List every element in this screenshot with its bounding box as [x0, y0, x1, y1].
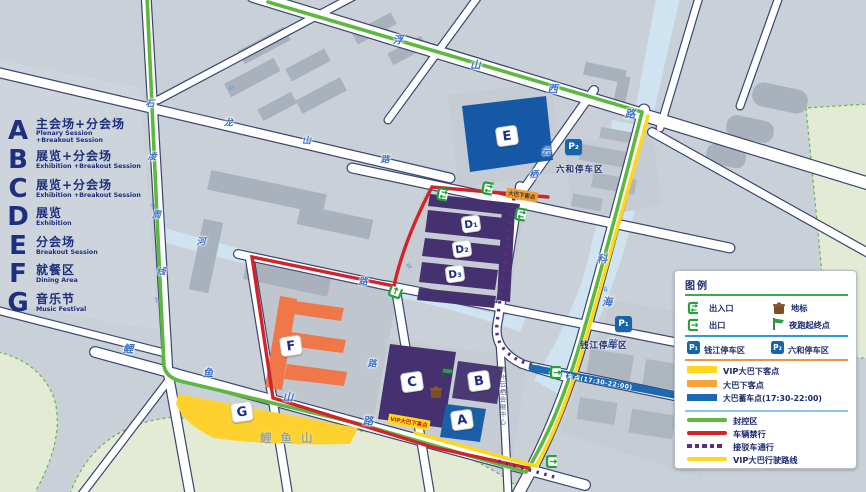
- venue-key-letter: D: [6, 204, 30, 230]
- hill-label: 鲤鱼山: [260, 430, 322, 446]
- parking-p1-icon: P₁: [687, 341, 700, 354]
- legend-bus-drop-label: 大巴下客点: [723, 379, 764, 391]
- venue-key-row-e: E 分会场 Breakout Session: [6, 231, 156, 261]
- no-vehicle-swatch: [687, 431, 727, 435]
- building-label-e: E: [495, 125, 520, 148]
- building-label-g: G: [230, 401, 255, 424]
- night-run-flag-icon: [441, 366, 456, 381]
- venue-key-row-a: A 主会场+分会场 Plenary Session +Breakout Sess…: [6, 116, 156, 146]
- legend-no-vehicle-label: 车辆禁行: [733, 428, 766, 440]
- legend-closed-area-label: 封控区: [733, 415, 758, 427]
- building-label-d3: D₃: [444, 264, 465, 283]
- exit-icon: [549, 365, 564, 380]
- event-map: A 主会场+分会场 Plenary Session +Breakout Sess…: [0, 0, 866, 492]
- closed-area-swatch: [687, 418, 727, 422]
- legend-title: 图例: [685, 277, 709, 292]
- venue-key-letter: G: [6, 290, 30, 316]
- venue-key-row-b: B 展览+分会场 Exhibition +Breakout Session: [6, 145, 156, 175]
- legend-shuttle-label: 接驳车通行: [733, 441, 774, 453]
- entrance-exit-icon: [435, 186, 452, 203]
- legend-bus-stage-label: 大巴蓄车点(17:30-22:00): [723, 393, 822, 404]
- legend-exit-label: 出口: [709, 319, 725, 331]
- legend-entrance-label: 出入口: [709, 302, 734, 314]
- night-run-flag-icon: [772, 316, 786, 335]
- legend-p2-label: 六和停车区: [788, 344, 829, 356]
- entrance-exit-icon: [513, 206, 530, 223]
- legend-vip-drop-label: VIP大巴下客点: [723, 365, 779, 377]
- building-label-c: C: [400, 371, 425, 394]
- exit-icon: [687, 317, 701, 336]
- venue-key-letter: F: [6, 261, 30, 287]
- shuttle-swatch: [687, 444, 722, 448]
- legend-divider: [685, 294, 848, 296]
- venue-key-letter: A: [6, 118, 30, 144]
- building-label-b: B: [467, 370, 492, 393]
- map-legend: 图例 出入口 地标 出口 夜跑起终点 P₁ 钱江停车区 P₂ 六和停车区 VIP…: [674, 270, 857, 469]
- parking-p2-icon: P₂: [771, 341, 784, 354]
- vip-route-swatch: [687, 457, 727, 461]
- legend-p1-label: 钱江停车区: [704, 344, 745, 356]
- exit-icon: [545, 454, 560, 469]
- building-label-a: A: [450, 409, 475, 432]
- legend-divider: [685, 410, 848, 412]
- legend-landmark-label: 地标: [791, 302, 807, 314]
- building-label-f: F: [279, 335, 304, 358]
- venue-key-letter: E: [6, 233, 30, 259]
- bus-stage-swatch: [687, 394, 717, 401]
- parking-p1-label: 钱江停车区: [580, 339, 628, 351]
- legend-night-run-label: 夜跑起终点: [789, 319, 830, 331]
- two-way-arrow-mark: ⇄: [600, 285, 609, 292]
- parking-p2-icon: P₂: [565, 139, 582, 155]
- legend-divider: [685, 359, 848, 361]
- venue-key-row-g: G 音乐节 Music Festival: [6, 288, 156, 318]
- legend-vip-route-label: VIP大巴行驶路线: [733, 454, 798, 466]
- bus-drop-swatch: [687, 380, 717, 387]
- parking-p2-label: 六和停车区: [556, 163, 604, 175]
- parking-p1-icon: P₁: [615, 316, 632, 332]
- two-way-arrow-mark: ⇄: [149, 203, 157, 210]
- two-way-arrow-mark: ⇄: [153, 297, 161, 304]
- landmark-icon: [430, 384, 445, 399]
- venue-name-label: 杭州云栖会展中心: [497, 366, 507, 426]
- entrance-exit-icon: [480, 180, 497, 197]
- legend-divider: [685, 335, 848, 337]
- building-label-d1: D₁: [460, 214, 481, 233]
- building-label-d2: D₂: [451, 239, 472, 258]
- venue-key-row-d: D 展览 Exhibition: [6, 202, 156, 232]
- venue-key-letter: B: [6, 147, 30, 173]
- venue-key-row-f: F 就餐区 Dining Area: [6, 259, 156, 289]
- venue-key-row-c: C 展览+分会场 Exhibition +Breakout Session: [6, 174, 156, 204]
- vip-drop-swatch: [687, 366, 717, 373]
- venue-key-letter: C: [6, 176, 30, 202]
